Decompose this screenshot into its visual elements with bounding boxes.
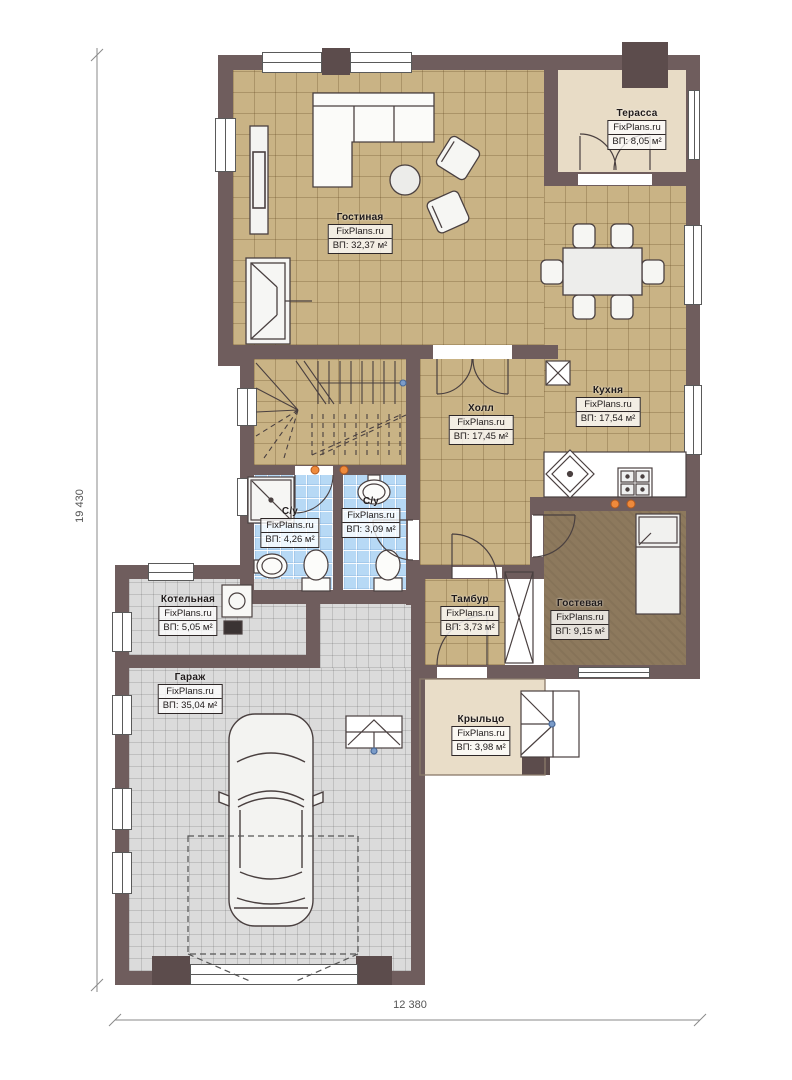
door-opening (532, 515, 543, 557)
window (578, 667, 650, 678)
door-opening (433, 347, 512, 358)
door-opening (452, 567, 502, 578)
room-label-boiler: Котельная FixPlans.ruВП: 5,05 м² (158, 594, 217, 636)
brand-label: FixPlans.ru (329, 225, 392, 239)
room-name: Крыльцо (451, 714, 510, 725)
room-name: Гостевая (550, 598, 609, 609)
room-label-bathroom1: С/у FixPlans.ruВП: 4,26 м² (260, 506, 319, 548)
window (237, 478, 257, 516)
brand-label: FixPlans.ru (608, 121, 665, 135)
wall (306, 579, 320, 668)
brand-label: FixPlans.ru (452, 727, 509, 741)
pillar (622, 42, 668, 88)
room-name: Кухня (576, 385, 641, 396)
door-opening (295, 466, 333, 475)
living-room-floor (233, 69, 544, 345)
stairs-floor (254, 359, 406, 465)
room-label-bathroom2: С/у FixPlans.ruВП: 3,09 м² (341, 496, 400, 538)
room-label-garage: Гараж FixPlans.ruВП: 35,04 м² (158, 672, 223, 714)
window (350, 52, 412, 73)
passage-floor (320, 604, 411, 668)
closet-floor (505, 572, 533, 663)
door-opening (408, 520, 419, 560)
door-opening (578, 174, 652, 185)
room-name: Гараж (158, 672, 223, 683)
room-area: ВП: 3,09 м² (342, 523, 399, 536)
dimension-height: 19 430 (74, 484, 86, 528)
window (112, 788, 132, 830)
room-area: ВП: 4,26 м² (261, 533, 318, 546)
brand-label: FixPlans.ru (261, 519, 318, 533)
brand-label: FixPlans.ru (342, 509, 399, 523)
window (262, 52, 322, 73)
room-label-vestibule: Тамбур FixPlans.ruВП: 3,73 м² (440, 594, 499, 636)
room-label-hall: Холл FixPlans.ruВП: 17,45 м² (449, 403, 514, 445)
wall (129, 655, 310, 668)
room-label-living: Гостиная FixPlans.ruВП: 32,37 м² (328, 212, 393, 254)
room-name: С/у (260, 506, 319, 517)
room-area: ВП: 5,05 м² (159, 621, 216, 634)
dimension-width: 12 380 (368, 999, 452, 1011)
room-area: ВП: 32,37 м² (329, 239, 392, 252)
wall (240, 590, 420, 604)
room-label-porch: Крыльцо FixPlans.ruВП: 3,98 м² (451, 714, 510, 756)
room-name: Котельная (158, 594, 217, 605)
room-label-kitchen: Кухня FixPlans.ruВП: 17,54 м² (576, 385, 641, 427)
brand-label: FixPlans.ru (551, 611, 608, 625)
window (112, 852, 132, 894)
pillar (322, 48, 350, 75)
room-area: ВП: 17,54 м² (577, 412, 640, 425)
wall (411, 565, 425, 985)
room-name: С/у (341, 496, 400, 507)
hall-floor (420, 359, 544, 565)
brand-label: FixPlans.ru (441, 607, 498, 621)
door-opening (437, 667, 487, 678)
window (684, 385, 702, 455)
pillar (152, 956, 190, 985)
room-area: ВП: 17,45 м² (450, 430, 513, 443)
room-area: ВП: 3,98 м² (452, 741, 509, 754)
room-name: Холл (449, 403, 514, 414)
kitchen-dining-floor (544, 186, 686, 497)
window (215, 118, 236, 172)
room-label-terrace: Терасса FixPlans.ruВП: 8,05 м² (607, 108, 666, 150)
brand-label: FixPlans.ru (577, 398, 640, 412)
room-area: ВП: 9,15 м² (551, 625, 608, 638)
brand-label: FixPlans.ru (159, 685, 222, 699)
room-area: ВП: 35,04 м² (159, 699, 222, 712)
window (112, 695, 132, 735)
room-area: ВП: 8,05 м² (608, 135, 665, 148)
floor-plan: Терасса FixPlans.ruВП: 8,05 м² Гостиная … (0, 0, 792, 1080)
wall (686, 511, 700, 679)
wall (233, 345, 433, 359)
wall (512, 345, 558, 359)
window (112, 612, 132, 652)
brand-label: FixPlans.ru (159, 607, 216, 621)
guest-room-floor (544, 511, 686, 665)
brand-label: FixPlans.ru (450, 416, 513, 430)
room-name: Гостиная (328, 212, 393, 223)
garage-door (190, 964, 358, 985)
wall (530, 497, 700, 511)
window (237, 388, 257, 426)
window (688, 90, 700, 160)
window (148, 563, 194, 581)
room-name: Терасса (607, 108, 666, 119)
room-label-guest: Гостевая FixPlans.ruВП: 9,15 м² (550, 598, 609, 640)
wall (544, 70, 558, 172)
pillar (356, 956, 392, 985)
window (684, 225, 702, 305)
room-area: ВП: 3,73 м² (441, 621, 498, 634)
room-name: Тамбур (440, 594, 499, 605)
wall (218, 70, 233, 352)
porch-wall-stub (522, 757, 550, 775)
